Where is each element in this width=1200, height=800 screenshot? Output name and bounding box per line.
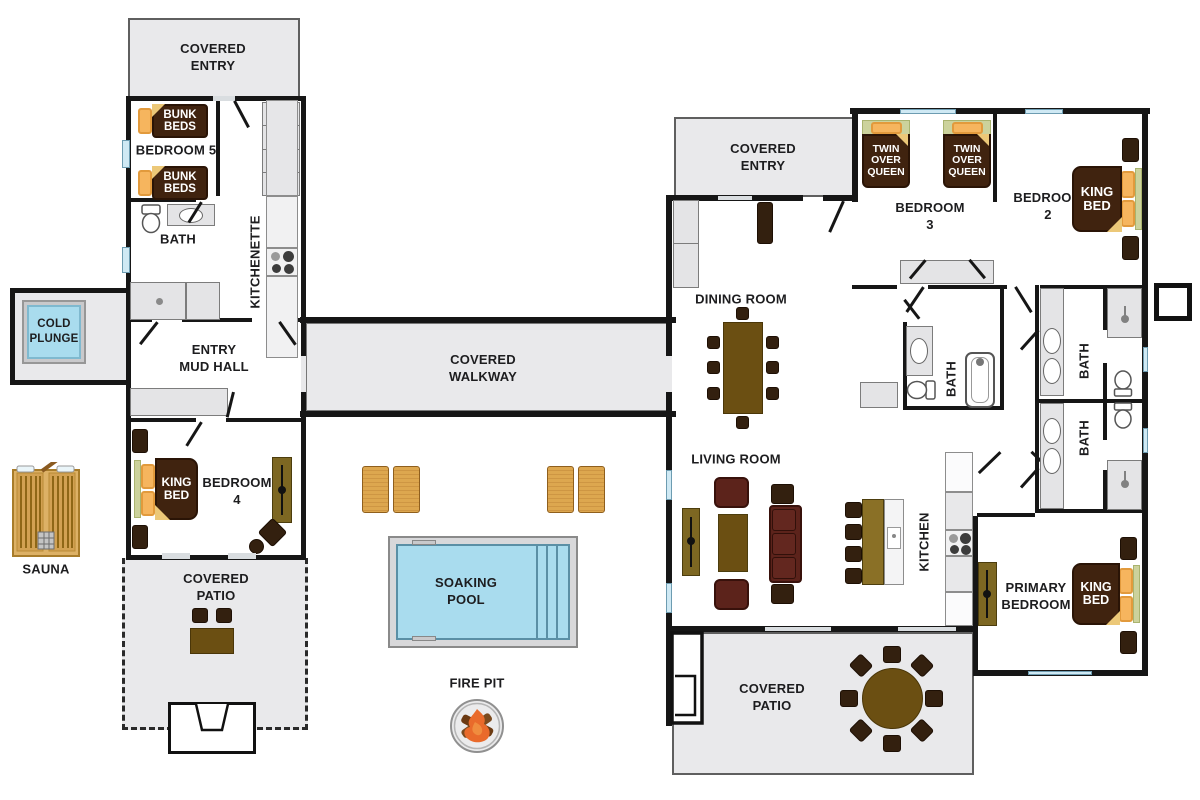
- kitchen-island: [862, 499, 884, 585]
- burner-icon: [283, 251, 294, 262]
- sofa-cushion: [772, 533, 796, 555]
- dining-chair: [766, 336, 779, 349]
- armchair: [714, 477, 749, 508]
- bar-stool: [845, 524, 862, 540]
- tv-icon: [687, 537, 695, 545]
- patio-chair: [192, 608, 208, 623]
- wall: [977, 513, 1035, 517]
- patio-door: [228, 553, 256, 559]
- wall: [130, 418, 196, 422]
- mudroom-bench: [130, 388, 228, 416]
- pool-ladder: [412, 540, 436, 545]
- wall: [1000, 285, 1004, 410]
- burner-icon: [949, 534, 958, 543]
- pool-step: [546, 546, 548, 638]
- bedroom3-label: BEDROOM 3: [895, 200, 964, 234]
- patio-chair: [883, 646, 901, 663]
- dining-chair: [766, 361, 779, 374]
- wall: [928, 285, 1007, 289]
- nightstand: [132, 429, 148, 453]
- dining-room-label: DINING ROOM: [695, 292, 787, 309]
- burner-icon: [272, 264, 281, 273]
- toilet-icon: [1112, 402, 1134, 429]
- window: [666, 470, 672, 500]
- upper-bath-label: BATH: [1077, 343, 1094, 379]
- tv-icon: [278, 486, 286, 494]
- outdoor-fireplace: [670, 631, 704, 725]
- patio-chair: [925, 690, 943, 707]
- bedroom5-label: BEDROOM 5: [136, 143, 217, 160]
- bedroom4-label: BEDROOM 4: [202, 475, 271, 509]
- patio-chair: [840, 690, 858, 707]
- window: [122, 140, 130, 168]
- lower-bath-label: BATH: [1077, 420, 1094, 456]
- kitchen-counter: [945, 556, 973, 592]
- wall: [666, 195, 672, 632]
- dining-chair: [736, 307, 749, 320]
- toilet-icon: [906, 378, 936, 402]
- shower-head-icon: [1121, 480, 1129, 488]
- dining-table: [723, 322, 763, 414]
- tv-icon: [983, 590, 991, 598]
- kitchenette-cabinets: [266, 100, 298, 196]
- door-opening: [718, 196, 752, 200]
- walkway-opening: [301, 356, 306, 392]
- living-room-label: LIVING ROOM: [691, 452, 781, 469]
- sauna-label: SAUNA: [22, 562, 69, 579]
- dining-chair: [707, 336, 720, 349]
- cold-plunge-label: COLD PLUNGE: [29, 317, 78, 347]
- patio-table: [190, 628, 234, 654]
- wall: [852, 110, 858, 202]
- covered-walkway-label: COVERED WALKWAY: [449, 352, 517, 386]
- shower-head-icon: [1124, 471, 1126, 481]
- hall-bath-label: BATH: [944, 361, 961, 397]
- window: [666, 583, 672, 613]
- island-sink-faucet: [892, 534, 896, 538]
- lounge-chair: [578, 466, 605, 513]
- closet: [860, 382, 898, 408]
- sink-icon: [1043, 448, 1061, 474]
- fire-pit-label: FIRE PIT: [449, 676, 504, 693]
- island-sink: [887, 527, 901, 549]
- wall: [850, 108, 1150, 114]
- entry-closet-divider: [673, 243, 699, 244]
- burner-icon: [271, 252, 280, 261]
- pool-step: [536, 546, 538, 638]
- main-covered-patio-label: COVERED PATIO: [739, 681, 805, 715]
- kitchenette-stove: [266, 248, 298, 276]
- pool-step: [556, 546, 558, 638]
- pool-ladder: [412, 636, 436, 641]
- guest-covered-patio-label: COVERED PATIO: [183, 571, 249, 605]
- soaking-pool-label: SOAKING POOL: [435, 575, 497, 609]
- nightstand: [1122, 138, 1139, 162]
- window: [1028, 671, 1092, 675]
- toilet-icon: [139, 204, 163, 234]
- dining-chair: [707, 361, 720, 374]
- faucet-icon: [976, 358, 984, 366]
- patio-step: [168, 702, 256, 754]
- burner-icon: [961, 545, 971, 555]
- patio-chair: [883, 735, 901, 752]
- nightstand: [1122, 236, 1139, 260]
- sauna-icon: [12, 462, 80, 558]
- primary-bedroom-label: PRIMARY BEDROOM: [1001, 580, 1070, 614]
- window: [1143, 428, 1148, 453]
- entry-bench: [757, 202, 773, 244]
- kitchenette-counter: [266, 276, 298, 358]
- kitchenette-counter: [266, 196, 298, 248]
- wall: [216, 100, 220, 196]
- wall: [852, 285, 897, 289]
- wall: [226, 418, 304, 422]
- round-patio-table: [862, 668, 923, 729]
- window: [1025, 109, 1063, 114]
- door-opening: [213, 96, 235, 101]
- wall: [1142, 108, 1148, 676]
- nightstand: [1120, 631, 1137, 654]
- closet: [186, 282, 220, 320]
- patio-chair: [216, 608, 232, 623]
- kitchen-cabinet: [945, 592, 973, 626]
- kitchen-label: KITCHEN: [917, 512, 934, 571]
- walkway-opening: [666, 356, 672, 392]
- wall: [10, 288, 128, 293]
- sink-icon: [1043, 328, 1061, 354]
- wall: [10, 380, 128, 385]
- sink-icon: [1043, 358, 1061, 384]
- kitchenette-label: KITCHENETTE: [248, 215, 265, 308]
- end-table: [771, 584, 794, 604]
- walkway-wall: [300, 317, 676, 323]
- nightstand: [1120, 537, 1137, 560]
- burner-icon: [960, 533, 971, 544]
- sofa-cushion: [772, 509, 796, 531]
- sink-icon: [910, 338, 928, 364]
- bar-stool: [845, 502, 862, 518]
- burner-icon: [284, 264, 294, 274]
- window: [900, 109, 956, 114]
- patio-door: [162, 553, 190, 559]
- toilet-icon: [1112, 370, 1134, 397]
- lounge-chair: [362, 466, 389, 513]
- armchair: [714, 579, 749, 610]
- wall: [1103, 363, 1107, 402]
- dining-chair: [707, 387, 720, 400]
- sofa-cushion: [772, 557, 796, 579]
- fire-pit-icon: [449, 698, 505, 754]
- guest-covered-entry-label: COVERED ENTRY: [180, 41, 246, 75]
- bar-stool: [845, 546, 862, 562]
- wall: [993, 112, 997, 202]
- lounge-chair: [393, 466, 420, 513]
- shower-head-icon: [1124, 306, 1126, 316]
- end-table: [771, 484, 794, 504]
- main-covered-entry-label: COVERED ENTRY: [730, 141, 796, 175]
- outdoor-square-structure: [1154, 283, 1192, 321]
- dining-chair: [736, 416, 749, 429]
- sink-icon: [1043, 418, 1061, 444]
- kitchen-cabinet: [945, 452, 973, 492]
- entry-closet: [673, 200, 699, 288]
- ottoman: [249, 539, 264, 554]
- lounge-chair: [547, 466, 574, 513]
- window: [122, 247, 130, 273]
- bar-stool: [845, 568, 862, 584]
- dining-chair: [766, 387, 779, 400]
- slider-door: [765, 627, 831, 631]
- floor-plan: COLD PLUNGE BUNK BEDS BUNK BEDS BEDROOM …: [0, 0, 1200, 800]
- shower-head-icon: [1121, 315, 1129, 323]
- wall: [1103, 402, 1107, 440]
- walkway-wall: [300, 411, 676, 417]
- coffee-table: [718, 514, 748, 572]
- kitchen-counter: [945, 492, 973, 530]
- nightstand: [132, 525, 148, 549]
- entry-mud-hall-label: ENTRY MUD HALL: [179, 342, 248, 376]
- window: [1143, 347, 1148, 372]
- wall: [10, 288, 15, 385]
- burner-icon: [950, 545, 959, 554]
- drain-icon: [156, 298, 163, 305]
- slider-door: [898, 627, 956, 631]
- guest-bath-label: BATH: [160, 232, 196, 249]
